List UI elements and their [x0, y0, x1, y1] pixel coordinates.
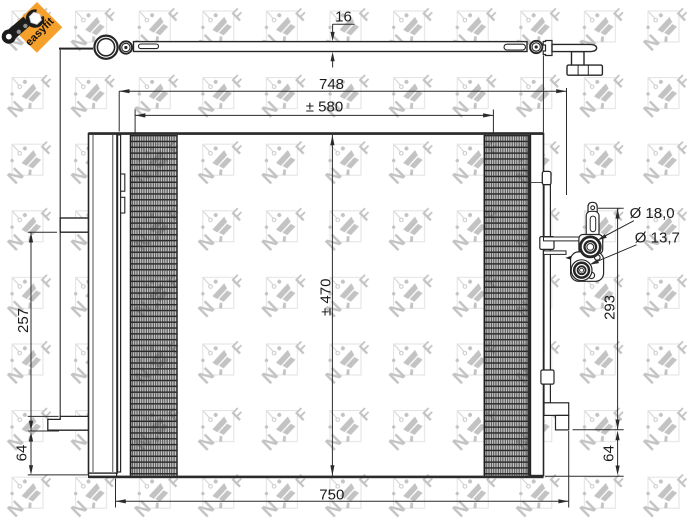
- svg-text:± 470: ± 470: [318, 279, 335, 316]
- svg-text:64: 64: [600, 445, 617, 462]
- svg-text:748: 748: [319, 76, 344, 93]
- svg-text:± 580: ± 580: [306, 98, 343, 115]
- svg-text:257: 257: [15, 308, 32, 333]
- svg-text:Ø 18,0: Ø 18,0: [630, 205, 675, 222]
- svg-text:293: 293: [602, 295, 619, 320]
- svg-text:64: 64: [14, 445, 31, 462]
- svg-text:Ø 13,7: Ø 13,7: [635, 230, 680, 247]
- svg-text:16: 16: [335, 9, 352, 26]
